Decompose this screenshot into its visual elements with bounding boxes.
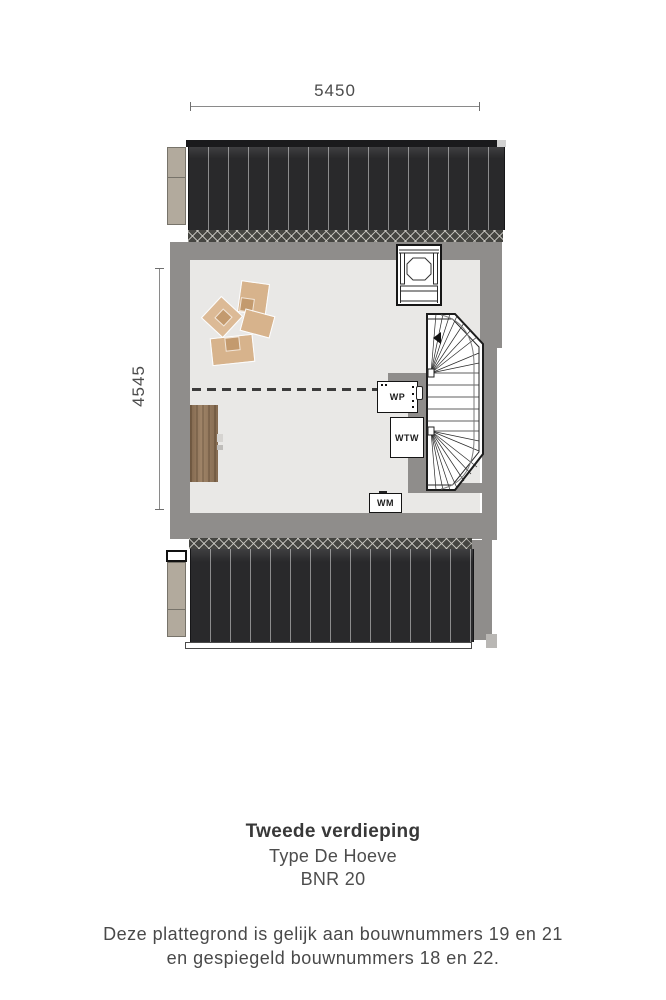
- wp-connector: [416, 386, 423, 400]
- neighbor-block-divider: [168, 177, 185, 178]
- caption-block: Tweede verdieping Type De Hoeve BNR 20 D…: [0, 820, 666, 970]
- exterior-wall-right-lower: [482, 348, 497, 540]
- wp-dot: [385, 384, 387, 386]
- neighbor-block-bottom-left: [167, 562, 186, 637]
- neighbor-block-divider: [168, 609, 185, 610]
- furniture-cushion: [225, 337, 239, 350]
- wtw-unit: WTW: [390, 417, 424, 458]
- laptop: [217, 434, 223, 442]
- roof-bottom: [190, 549, 474, 642]
- laptop-accessory: [217, 445, 223, 450]
- chimney-flue: [396, 244, 442, 306]
- winder-staircase: [426, 313, 484, 491]
- wtw-label: WTW: [395, 433, 419, 443]
- dimension-height-line: [159, 268, 160, 510]
- roof-top-ridge-cap: [497, 140, 506, 147]
- neighbor-block-bottom-cap: [166, 550, 187, 562]
- wp-dot: [412, 386, 414, 388]
- floorplan-page: 5450 4545: [0, 0, 666, 1000]
- neighbor-block-top-left: [167, 147, 186, 225]
- flue-octagon: [407, 258, 431, 280]
- exterior-wall-left: [170, 242, 190, 539]
- caption-bnr-line: BNR 20: [0, 868, 666, 890]
- caption-floor-title: Tweede verdieping: [0, 820, 666, 844]
- caption-note-line1: Deze plattegrond is gelijk aan bouwnumme…: [0, 922, 666, 946]
- roof-top-eave-hatch: [188, 230, 503, 242]
- stair-newel-bottom: [428, 427, 434, 435]
- wp-dot: [381, 384, 383, 386]
- caption-note: Deze plattegrond is gelijk aan bouwnumme…: [0, 922, 666, 970]
- dimension-height-tick-bottom: [155, 509, 164, 510]
- dimension-height-label: 4545: [129, 364, 149, 408]
- roof-top-ridge: [186, 140, 502, 147]
- caption-type-line: Type De Hoeve: [0, 844, 666, 868]
- heat-pump-label: WP: [390, 392, 406, 402]
- washing-machine-unit: WM: [369, 493, 402, 513]
- desk: [190, 405, 218, 482]
- washing-machine-label: WM: [377, 498, 394, 508]
- exterior-wall-right-footing: [486, 634, 497, 648]
- roof-top: [188, 147, 505, 230]
- exterior-wall-top: [170, 242, 502, 260]
- roof-bottom-eave-hatch: [189, 538, 472, 549]
- dimension-width-tick-right: [479, 102, 480, 111]
- exterior-wall-right-column: [472, 540, 492, 640]
- exterior-wall-bottom: [170, 513, 482, 539]
- roof-bottom-gutter-trim: [185, 642, 472, 649]
- wp-dot: [412, 393, 414, 395]
- stair-newel-top: [428, 369, 434, 377]
- wp-dot: [412, 400, 414, 402]
- dimension-width-tick-left: [190, 102, 191, 111]
- dimension-width-label: 5450: [302, 81, 368, 101]
- knee-wall-dashed-line: [192, 388, 377, 391]
- dimension-height-tick-top: [155, 268, 164, 269]
- caption-note-line2: en gespiegeld bouwnummers 18 en 22.: [0, 946, 666, 970]
- wp-dot: [412, 406, 414, 408]
- dimension-width-line: [190, 106, 480, 107]
